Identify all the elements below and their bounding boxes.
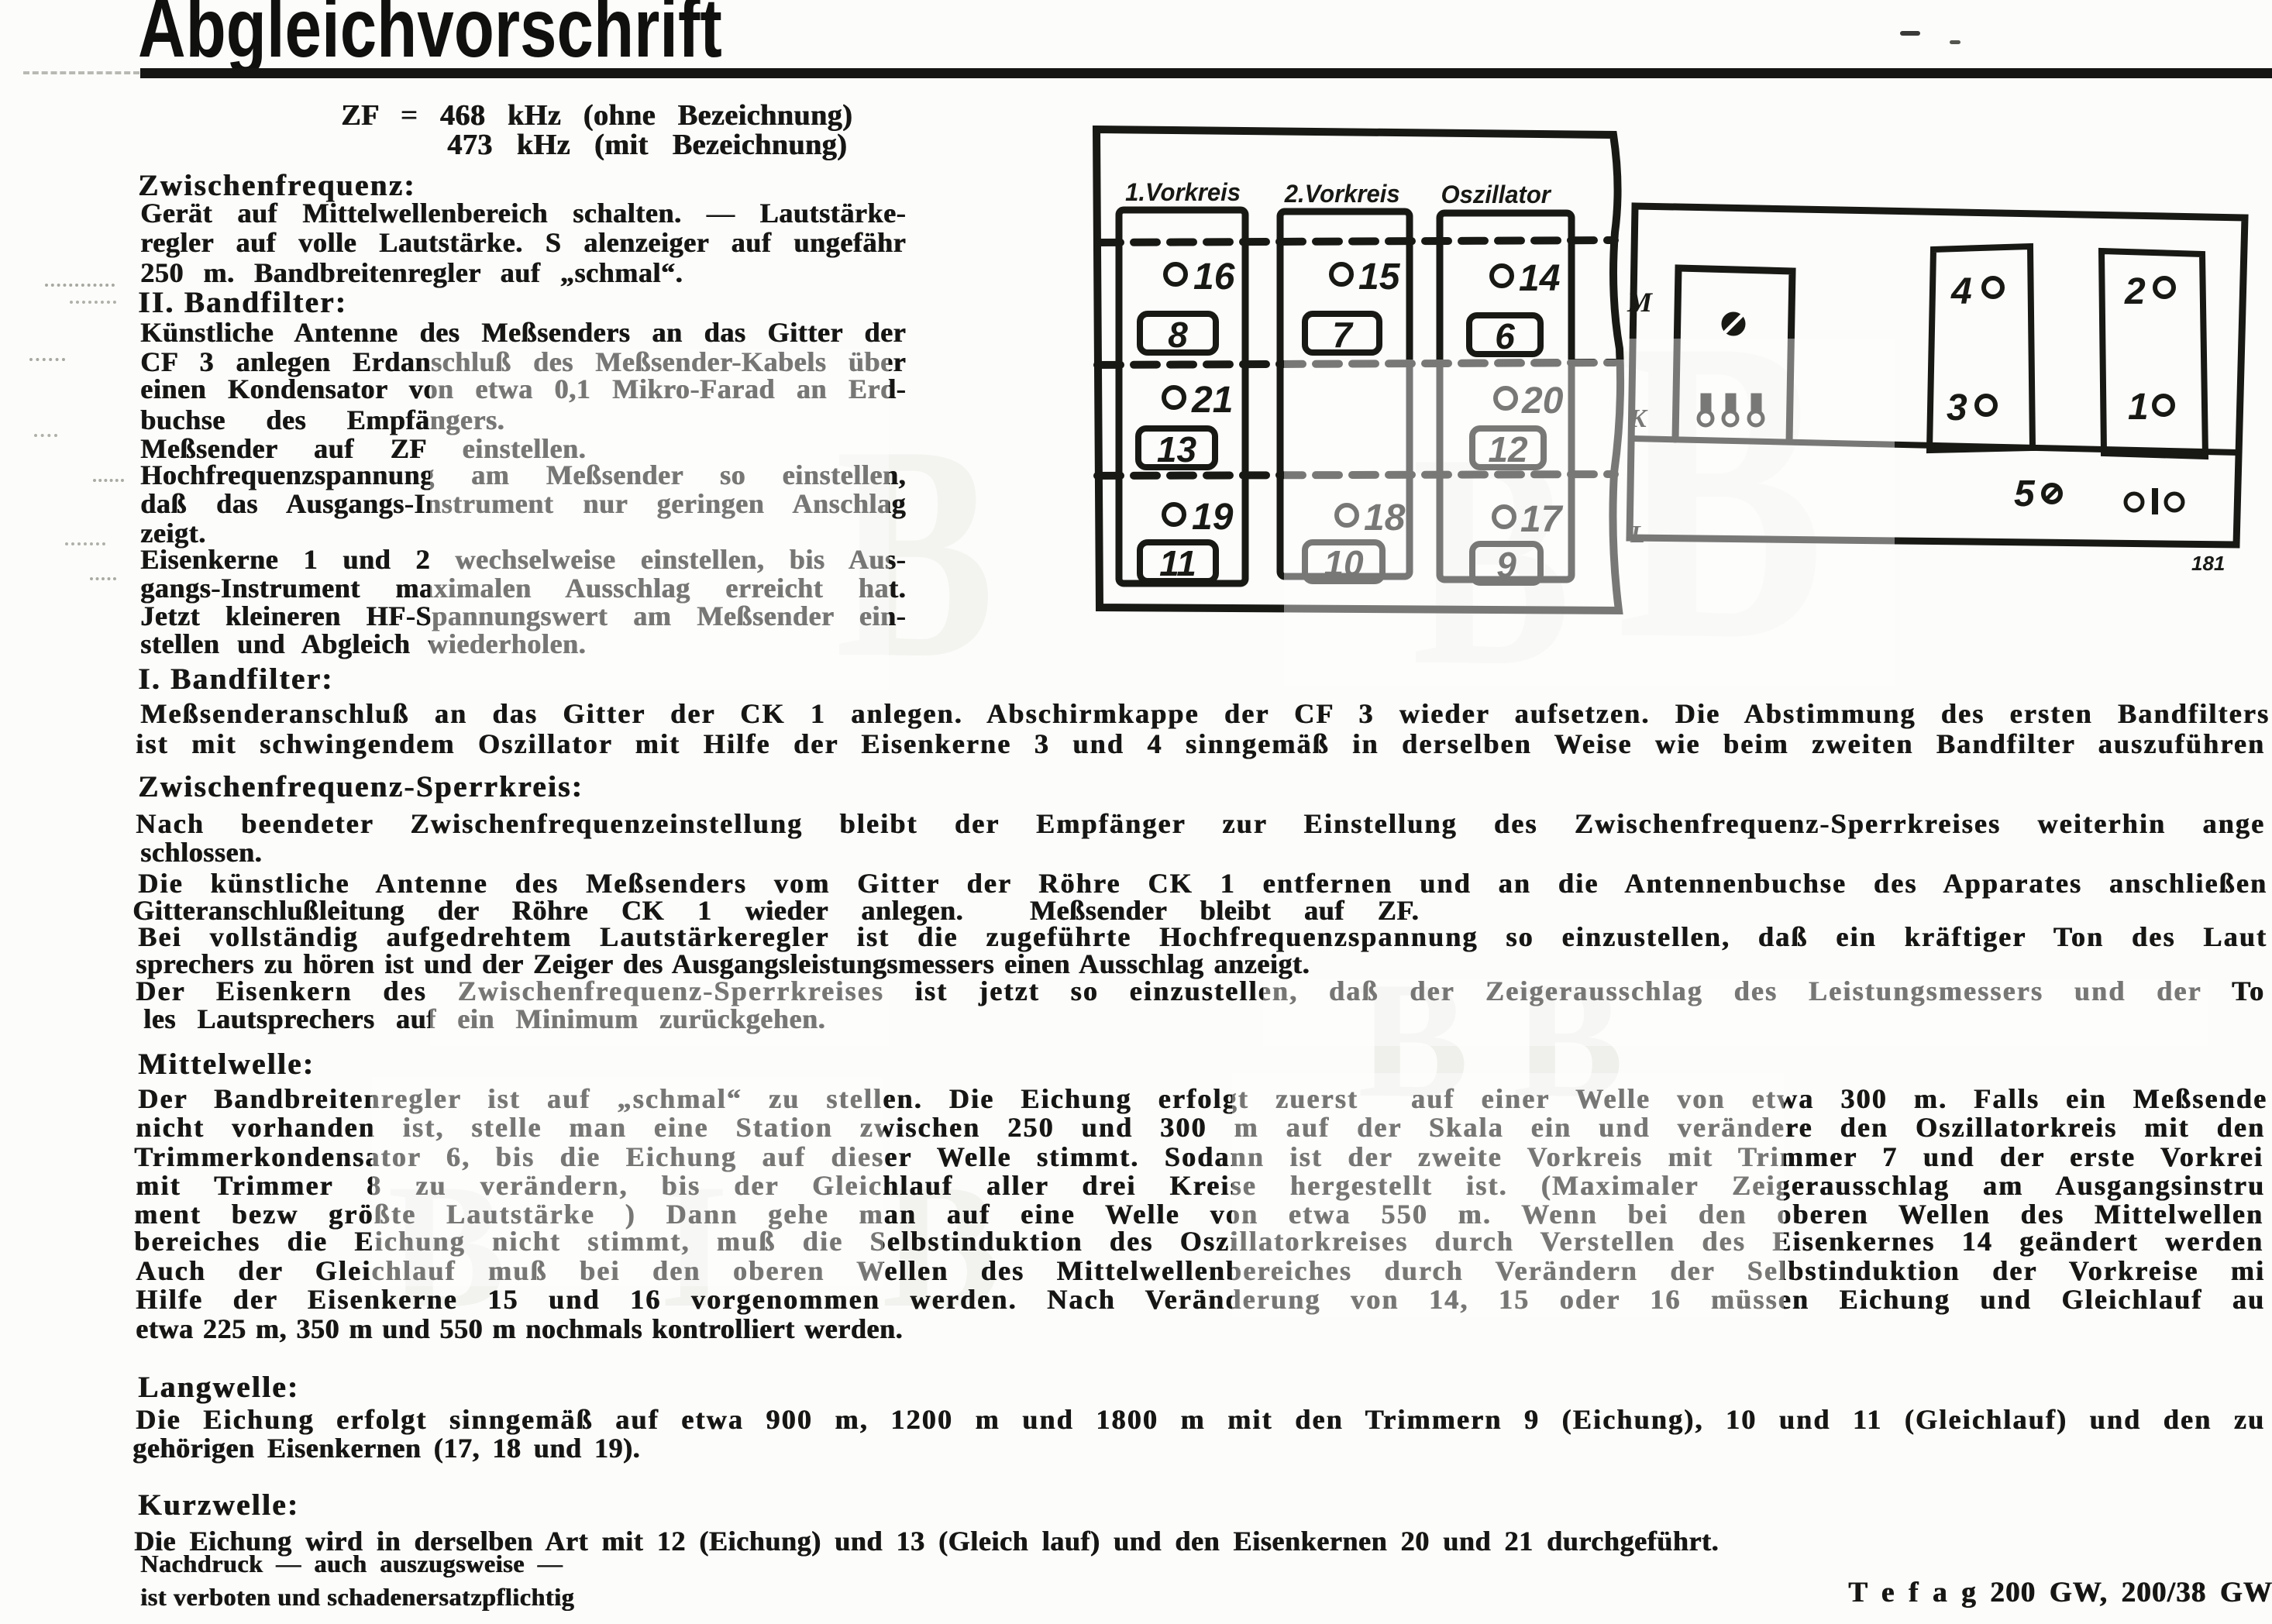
svg-text:3: 3: [1947, 387, 1967, 428]
svg-text:14: 14: [1519, 258, 1560, 299]
svg-text:8: 8: [1168, 315, 1188, 355]
svg-text:1: 1: [2128, 387, 2149, 428]
svg-text:15: 15: [1358, 256, 1401, 298]
svg-text:7: 7: [1332, 315, 1354, 355]
svg-text:Oszillator: Oszillator: [1441, 181, 1551, 209]
svg-text:6: 6: [1495, 316, 1515, 356]
svg-text:2.Vorkreis: 2.Vorkreis: [1284, 180, 1400, 208]
svg-text:21: 21: [1191, 380, 1233, 421]
svg-text:16: 16: [1193, 256, 1235, 298]
svg-text:11: 11: [1159, 543, 1196, 583]
svg-text:19: 19: [1192, 497, 1234, 538]
svg-text:2: 2: [2124, 271, 2146, 312]
svg-text:4: 4: [1950, 271, 1972, 312]
svg-text:181: 181: [2191, 552, 2225, 575]
svg-text:1.Vorkreis: 1.Vorkreis: [1125, 178, 1241, 207]
svg-text:5: 5: [2014, 473, 2036, 514]
svg-text:13: 13: [1157, 429, 1197, 470]
